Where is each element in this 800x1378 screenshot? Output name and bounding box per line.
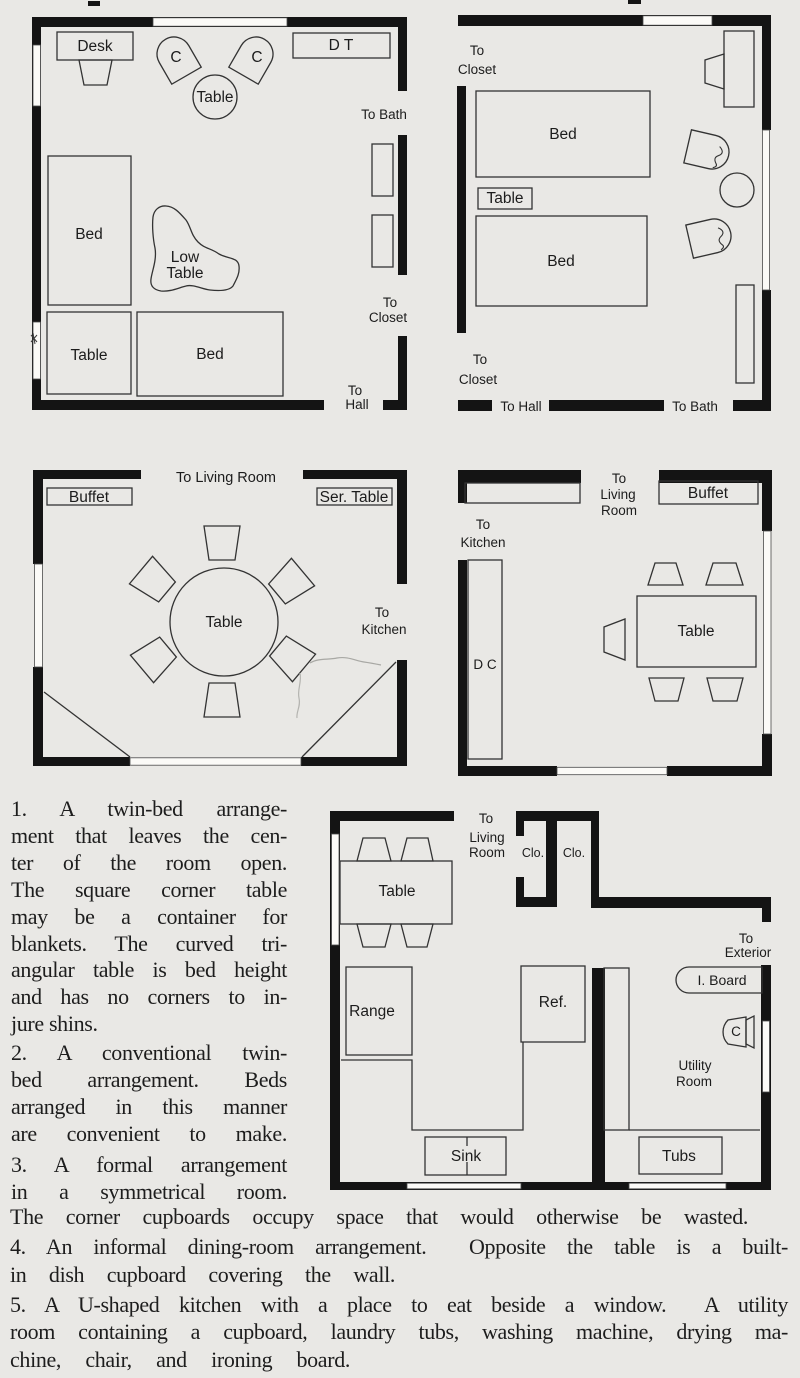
svg-text:Living: Living <box>469 830 504 845</box>
svg-text:Low: Low <box>171 249 200 266</box>
svg-text:Exterior: Exterior <box>725 945 772 960</box>
svg-text:I. Board: I. Board <box>697 972 746 988</box>
svg-text:To Bath: To Bath <box>361 107 407 122</box>
svg-text:Range: Range <box>349 1003 395 1020</box>
svg-text:Table: Table <box>70 347 107 364</box>
svg-text:Clo.: Clo. <box>522 846 544 860</box>
svg-text:To Bath: To Bath <box>672 399 718 414</box>
svg-text:Room: Room <box>469 845 505 860</box>
svg-text:To: To <box>375 605 389 620</box>
svg-text:Bed: Bed <box>547 253 575 270</box>
svg-text:C: C <box>731 1024 741 1039</box>
svg-text:To: To <box>348 383 362 398</box>
svg-text:Table: Table <box>677 623 714 640</box>
svg-text:To: To <box>739 931 753 946</box>
svg-text:C: C <box>251 49 262 66</box>
svg-text:Table: Table <box>196 89 233 106</box>
svg-text:Kitchen: Kitchen <box>460 535 505 550</box>
svg-text:Ref.: Ref. <box>539 994 567 1011</box>
svg-text:Desk: Desk <box>77 38 113 55</box>
svg-text:Table: Table <box>378 883 415 900</box>
svg-text:D T: D T <box>329 37 354 54</box>
svg-text:Sink: Sink <box>451 1148 481 1165</box>
svg-text:Room: Room <box>601 503 637 518</box>
svg-text:To: To <box>473 352 487 367</box>
svg-text:To Living Room: To Living Room <box>176 470 276 486</box>
svg-text:Room: Room <box>676 1074 712 1089</box>
svg-text:Bed: Bed <box>549 126 577 143</box>
svg-text:To: To <box>479 811 493 826</box>
svg-text:Table: Table <box>166 265 203 282</box>
svg-text:Closet: Closet <box>458 62 497 77</box>
svg-text:Closet: Closet <box>369 310 408 325</box>
svg-text:Buffet: Buffet <box>688 485 729 502</box>
svg-text:To: To <box>383 295 397 310</box>
svg-text:Buffet: Buffet <box>69 489 110 506</box>
svg-text:Table: Table <box>486 190 523 207</box>
svg-text:C: C <box>170 49 181 66</box>
svg-text:Living: Living <box>600 487 635 502</box>
svg-text:Tubs: Tubs <box>662 1148 696 1165</box>
svg-text:To: To <box>476 517 490 532</box>
svg-text:Bed: Bed <box>196 346 224 363</box>
svg-text:To Hall: To Hall <box>500 399 541 414</box>
svg-text:D C: D C <box>473 657 497 672</box>
svg-text:Bed: Bed <box>75 226 103 243</box>
svg-text:Closet: Closet <box>459 372 498 387</box>
svg-text:Clo.: Clo. <box>563 846 585 860</box>
svg-text:Kitchen: Kitchen <box>361 622 406 637</box>
svg-text:To: To <box>470 43 484 58</box>
svg-text:To: To <box>612 471 626 486</box>
svg-text:Table: Table <box>205 614 242 631</box>
svg-text:Utility: Utility <box>679 1058 712 1073</box>
svg-text:Ser. Table: Ser. Table <box>320 489 389 506</box>
svg-text:Hall: Hall <box>345 397 368 412</box>
